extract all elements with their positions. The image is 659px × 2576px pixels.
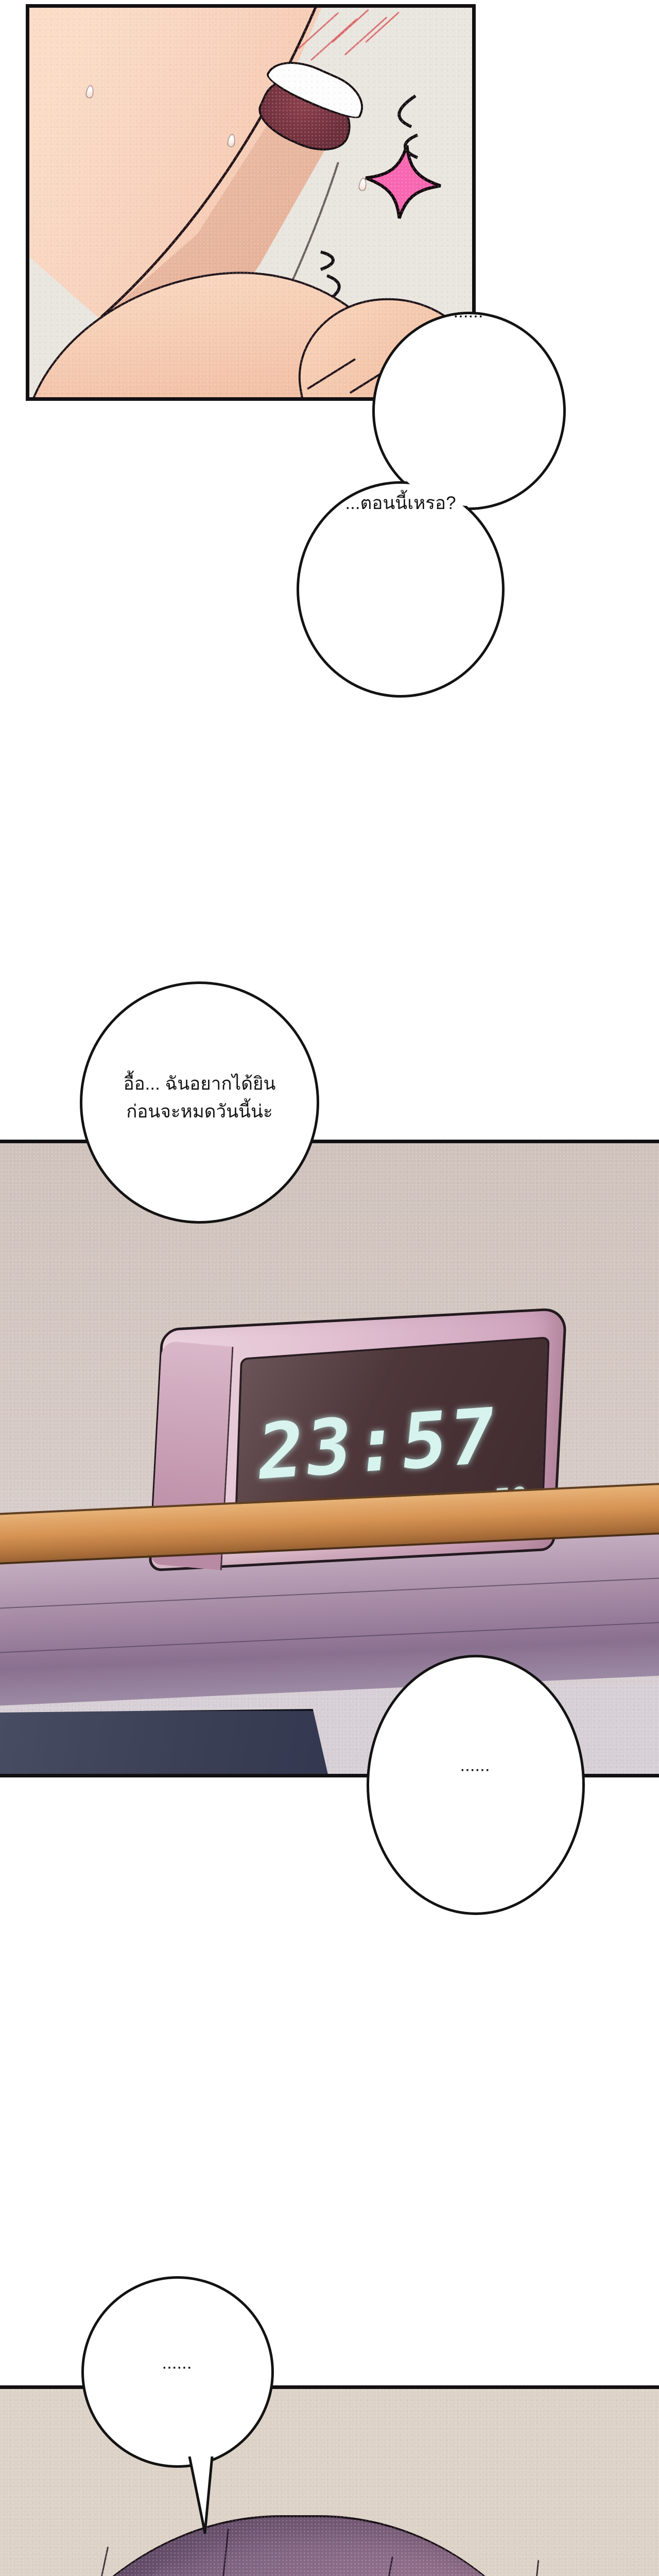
bubble-3-line-1: อื้อ... ฉันอยากได้ยิน xyxy=(82,1070,317,1098)
panel-clock: 23:57 50 xyxy=(0,1140,659,1777)
bubble-4-text: ...... xyxy=(369,1757,582,1776)
slat-line xyxy=(0,1621,659,1654)
clock-time: 23:57 xyxy=(253,1391,501,1497)
bubble-1-text: ...... xyxy=(372,304,566,502)
comic-page: 23:57 50 ระเรื่อ เว็บสนุกที่แบ่งปันความส… xyxy=(0,0,659,2576)
bubble-3-line-2: ก่อนจะหมดวันนี้น่ะ xyxy=(82,1098,317,1126)
speech-bubble-4: ...... xyxy=(367,1655,585,1915)
blanket-fold-line xyxy=(505,2560,540,2576)
finger-crease xyxy=(307,358,356,390)
speech-bubble-5: ...... xyxy=(81,2276,274,2468)
shake-lines-icon xyxy=(385,93,422,161)
slat-line xyxy=(0,1577,659,1609)
bubble-5-text: ...... xyxy=(84,2355,271,2374)
speech-bubble-3: อื้อ... ฉันอยากได้ยิน ก่อนจะหมดวันนี้น่ะ xyxy=(80,981,319,1224)
bubble-2-text: ...ตอนนี้เหรอ? xyxy=(297,489,505,706)
blanket-fold-line xyxy=(47,2547,109,2576)
speech-bubble-tail xyxy=(185,2456,216,2536)
purple-blanket xyxy=(0,2515,602,2576)
dark-furniture-edge xyxy=(0,1709,333,1777)
bubble-3-text: อื้อ... ฉันอยากได้ยิน ก่อนจะหมดวันนี้น่ะ xyxy=(82,1070,317,1126)
